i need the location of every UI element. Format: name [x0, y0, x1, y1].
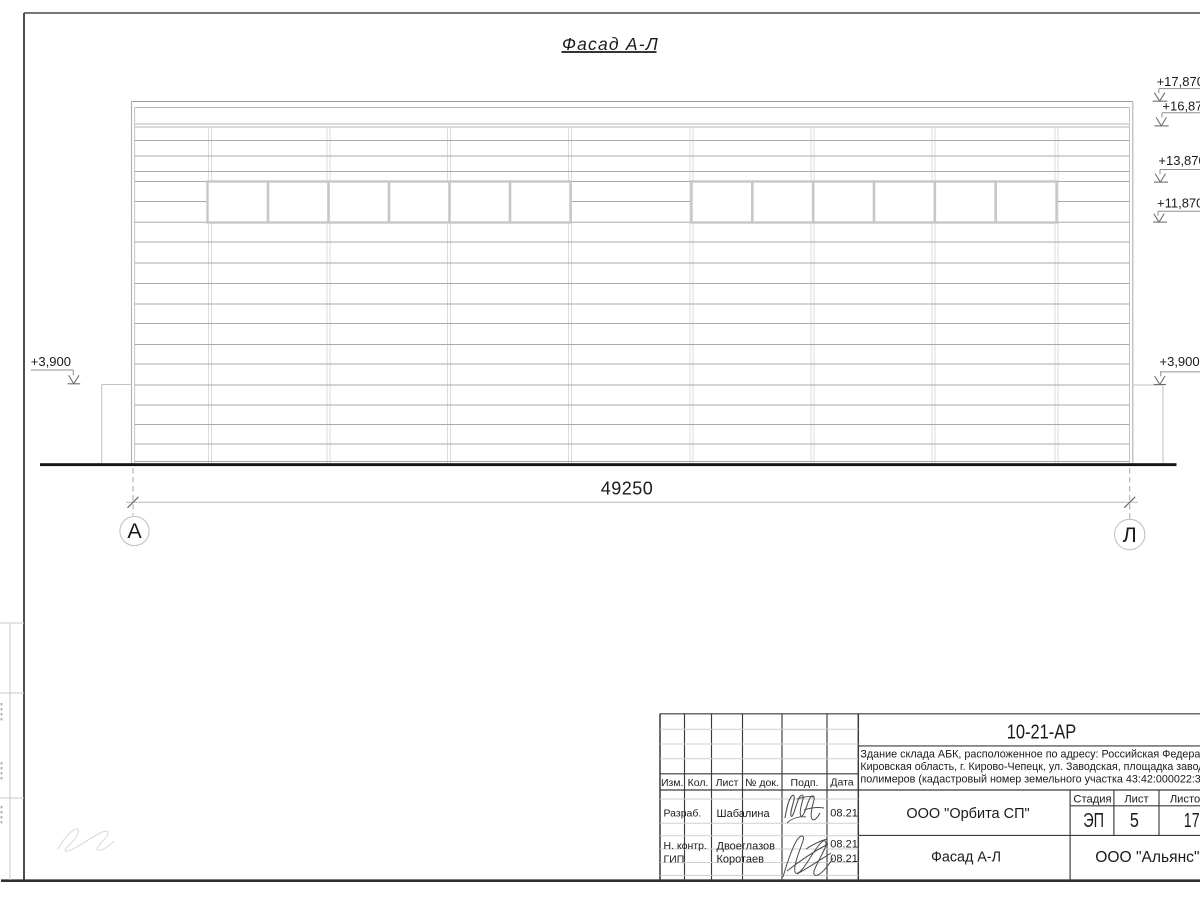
svg-text:Лист: Лист: [1124, 793, 1148, 805]
svg-text:№ док.: № док.: [745, 777, 779, 789]
svg-text:Фасад А-Л: Фасад А-Л: [562, 34, 659, 54]
svg-text:08.21: 08.21: [830, 808, 858, 820]
svg-text:ГИП: ГИП: [664, 853, 685, 865]
svg-text:Фасад А-Л: Фасад А-Л: [931, 850, 1001, 866]
svg-text:5: 5: [1130, 809, 1139, 832]
svg-text:08.21: 08.21: [830, 853, 858, 865]
svg-text:Здание склада АБК, расположенн: Здание склада АБК, расположенное по адре…: [860, 749, 1200, 761]
svg-text:Н. контр.: Н. контр.: [664, 840, 707, 852]
svg-text:ООО "Орбита СП": ООО "Орбита СП": [906, 806, 1029, 822]
svg-text:Коротаев: Коротаев: [717, 854, 765, 866]
svg-text:Шабалина: Шабалина: [717, 808, 771, 820]
svg-text:Стадия: Стадия: [1073, 793, 1111, 805]
svg-text:+16,870: +16,870: [1162, 99, 1200, 114]
svg-text:Листов: Листов: [1170, 793, 1200, 805]
svg-text:Л: Л: [1123, 523, 1137, 547]
svg-text:+3,900: +3,900: [31, 354, 71, 369]
svg-text:ООО "Альянс": ООО "Альянс": [1095, 849, 1199, 866]
svg-text:Кол.: Кол.: [688, 777, 709, 789]
svg-text:+13,870: +13,870: [1158, 153, 1200, 168]
svg-text:Лист: Лист: [716, 777, 739, 789]
svg-text:08.21: 08.21: [830, 839, 858, 851]
svg-text:Кировская область, г. Кирово-Ч: Кировская область, г. Кирово-Чепецк, ул.…: [860, 761, 1200, 773]
svg-text:Дата: Дата: [830, 777, 853, 789]
svg-text:Подп.: Подп.: [791, 777, 819, 789]
svg-text:полимеров (кадастровый номер з: полимеров (кадастровый номер земельного …: [860, 774, 1200, 786]
svg-text:17: 17: [1184, 809, 1200, 832]
svg-text:10-21-АР: 10-21-АР: [1007, 721, 1076, 743]
svg-text:+3,900: +3,900: [1160, 354, 1200, 369]
svg-text:ЭП: ЭП: [1083, 809, 1104, 832]
svg-text:+17,870: +17,870: [1157, 74, 1200, 89]
svg-text:49250: 49250: [601, 478, 654, 498]
svg-text:+11,870: +11,870: [1157, 196, 1200, 211]
svg-text:Изм.: Изм.: [661, 777, 684, 789]
svg-text:А: А: [127, 519, 142, 543]
svg-text:Разраб.: Разраб.: [664, 807, 702, 819]
svg-text:Двоеглазов: Двоеглазов: [717, 840, 776, 852]
